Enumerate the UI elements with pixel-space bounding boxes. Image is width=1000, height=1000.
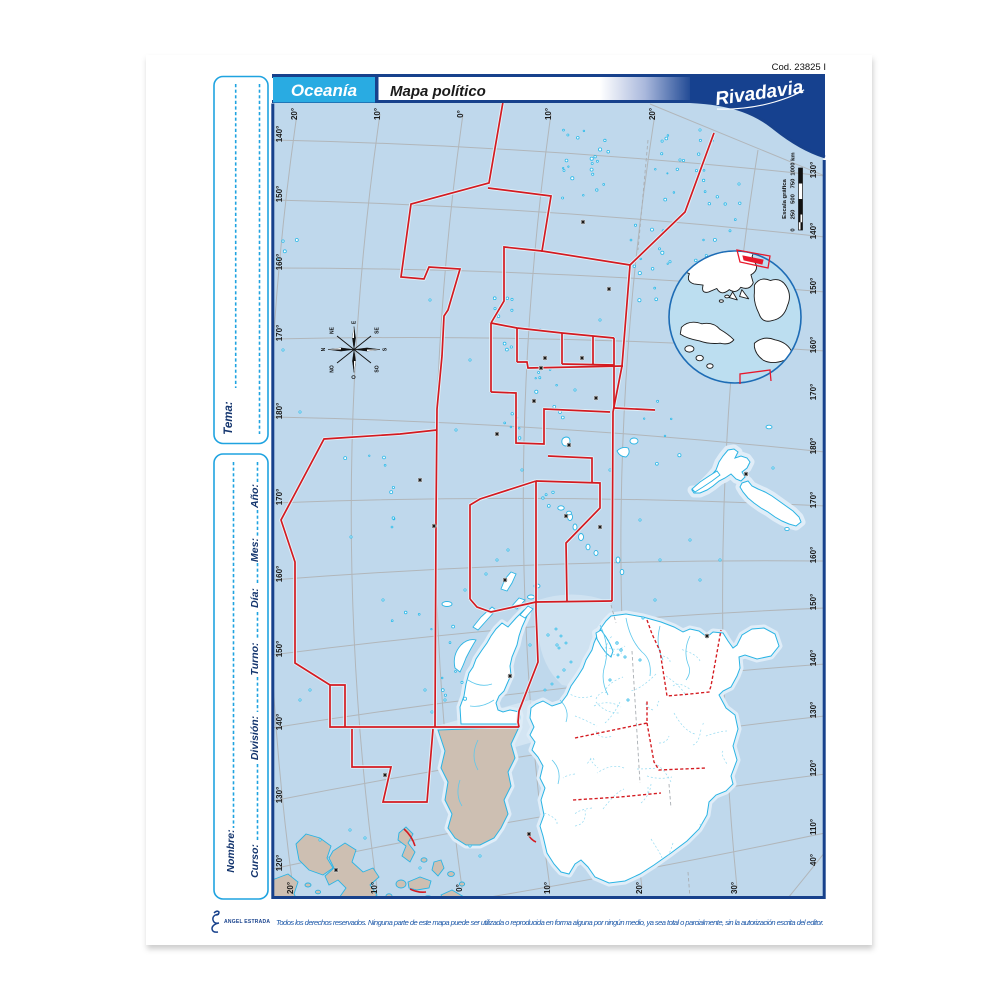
svg-text:20°: 20°	[648, 108, 657, 120]
svg-text:170°: 170°	[275, 489, 284, 506]
svg-text:160°: 160°	[809, 337, 818, 354]
svg-text:130°: 130°	[275, 787, 284, 804]
svg-text:180°: 180°	[809, 438, 818, 455]
svg-text:120°: 120°	[275, 855, 284, 872]
svg-text:10°: 10°	[373, 108, 382, 120]
svg-text:Nombre:: Nombre:	[225, 829, 237, 872]
svg-text:160°: 160°	[275, 254, 284, 271]
svg-text:250: 250	[791, 209, 797, 220]
svg-text:División:: División:	[249, 716, 261, 760]
svg-text:10°: 10°	[370, 882, 379, 894]
svg-text:Todos los derechos reservados.: Todos los derechos reservados. Ninguna p…	[276, 918, 824, 927]
svg-text:20°: 20°	[635, 882, 644, 894]
svg-text:180°: 180°	[275, 403, 284, 420]
svg-text:O: O	[351, 375, 357, 379]
svg-text:140°: 140°	[275, 126, 284, 143]
svg-text:10°: 10°	[544, 108, 553, 120]
svg-text:500: 500	[791, 193, 797, 204]
svg-text:40°: 40°	[809, 854, 818, 866]
svg-text:150°: 150°	[275, 641, 284, 658]
svg-text:0°: 0°	[456, 110, 465, 118]
svg-text:150°: 150°	[809, 278, 818, 295]
svg-text:170°: 170°	[275, 325, 284, 342]
svg-text:NO: NO	[329, 365, 335, 373]
svg-text:Curso:: Curso:	[249, 844, 261, 878]
svg-text:120°: 120°	[809, 760, 818, 777]
svg-text:140°: 140°	[809, 650, 818, 667]
svg-text:Tema:: Tema:	[223, 401, 235, 435]
svg-text:140°: 140°	[809, 223, 818, 240]
svg-text:10°: 10°	[543, 882, 552, 894]
svg-text:1000 km: 1000 km	[791, 152, 797, 175]
svg-text:0°: 0°	[455, 884, 464, 892]
svg-text:Día:: Día:	[249, 588, 261, 608]
svg-text:SE: SE	[374, 327, 380, 334]
svg-text:Turno:: Turno:	[249, 642, 261, 675]
svg-text:Año:: Año:	[249, 484, 261, 509]
svg-text:150°: 150°	[809, 594, 818, 611]
svg-text:140°: 140°	[275, 714, 284, 731]
svg-text:20°: 20°	[286, 882, 295, 894]
svg-text:160°: 160°	[275, 566, 284, 583]
svg-text:130°: 130°	[809, 162, 818, 179]
svg-text:SO: SO	[374, 365, 380, 372]
svg-text:150°: 150°	[275, 186, 284, 203]
svg-text:Oceanía: Oceanía	[291, 81, 357, 100]
svg-text:30°: 30°	[730, 882, 739, 894]
svg-text:160°: 160°	[809, 547, 818, 564]
svg-text:Mapa político: Mapa político	[390, 83, 486, 100]
svg-text:Escala gráfica: Escala gráfica	[782, 178, 788, 218]
svg-text:NE: NE	[329, 326, 335, 334]
svg-text:170°: 170°	[809, 492, 818, 509]
svg-text:170°: 170°	[809, 384, 818, 401]
svg-text:N: N	[321, 347, 327, 351]
svg-text:130°: 130°	[809, 702, 818, 719]
svg-text:110°: 110°	[809, 819, 818, 835]
svg-text:20°: 20°	[290, 108, 299, 120]
svg-text:750: 750	[791, 178, 797, 189]
svg-text:Cod. 23825 I: Cod. 23825 I	[772, 62, 826, 73]
svg-text:ANGEL ESTRADA: ANGEL ESTRADA	[224, 919, 270, 925]
svg-text:Mes:: Mes:	[249, 538, 261, 562]
